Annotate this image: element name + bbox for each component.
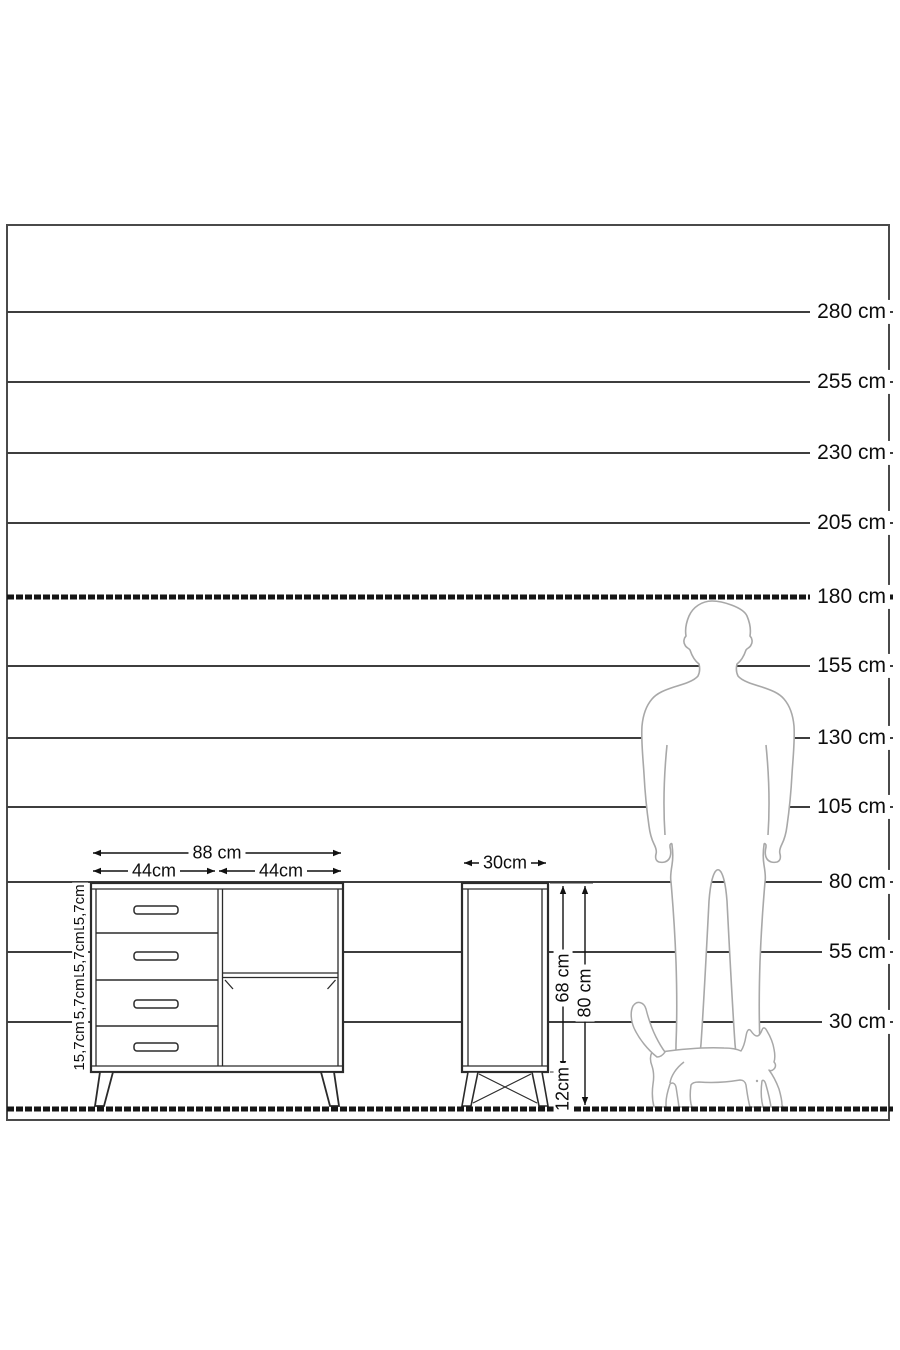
scale-label: 30 cm xyxy=(822,1010,890,1034)
scale-label: 205 cm xyxy=(810,511,890,535)
man-outline xyxy=(642,601,795,1078)
cabinet-side-view xyxy=(462,883,548,1106)
scale-label: 230 cm xyxy=(810,441,890,465)
scale-label: 55 cm xyxy=(822,940,890,964)
scale-label: 130 cm xyxy=(810,726,890,750)
dim-label-drawer-4: 15,7cm xyxy=(72,1019,88,1072)
cabinet-front-view xyxy=(91,883,343,1106)
cabinet-leg-left xyxy=(95,1072,113,1106)
dim-label-overall-width: 88 cm xyxy=(188,844,245,863)
cat-fur-dot xyxy=(756,1080,758,1082)
drawer-handle-2 xyxy=(134,952,178,960)
drawer-handle-4 xyxy=(134,1043,178,1051)
dim-label-leg-height: 12cm xyxy=(554,1063,573,1115)
cat-silhouette xyxy=(631,1002,783,1107)
side-leg-brace-a xyxy=(479,1074,537,1103)
dim-label-drawer-2: 15,7cm xyxy=(72,929,88,982)
cabinet-side-body xyxy=(462,883,548,1072)
dim-label-left-width: 44cm xyxy=(128,862,180,881)
drawer-handle-1 xyxy=(134,906,178,914)
cabinet-leg-right xyxy=(321,1072,339,1106)
scale-label: 80 cm xyxy=(822,870,890,894)
dim-label-depth: 30cm xyxy=(479,854,531,873)
drawer-handle-3 xyxy=(134,1000,178,1008)
man-silhouette xyxy=(642,601,795,1078)
dim-label-right-width: 44cm xyxy=(255,862,307,881)
scale-label: 105 cm xyxy=(810,795,890,819)
dim-label-carcass-height: 68 cm xyxy=(554,949,573,1006)
side-leg-brace-b xyxy=(473,1074,531,1103)
cat-tail xyxy=(631,1002,665,1057)
scale-label: 155 cm xyxy=(810,654,890,678)
side-leg-left xyxy=(462,1072,478,1106)
scale-label: 180 cm xyxy=(810,585,890,609)
scale-label: 280 cm xyxy=(810,300,890,324)
cat-body xyxy=(651,1028,784,1107)
side-leg-right xyxy=(532,1072,548,1106)
diagram-artwork xyxy=(0,0,900,1350)
dim-label-overall-height: 80 cm xyxy=(576,964,595,1021)
scale-label: 255 cm xyxy=(810,370,890,394)
diagram-canvas: 180 cm 280 cm 255 cm 230 cm 205 cm 155 c… xyxy=(0,0,900,1350)
dim-label-drawer-1: 15,7cm xyxy=(72,882,88,935)
